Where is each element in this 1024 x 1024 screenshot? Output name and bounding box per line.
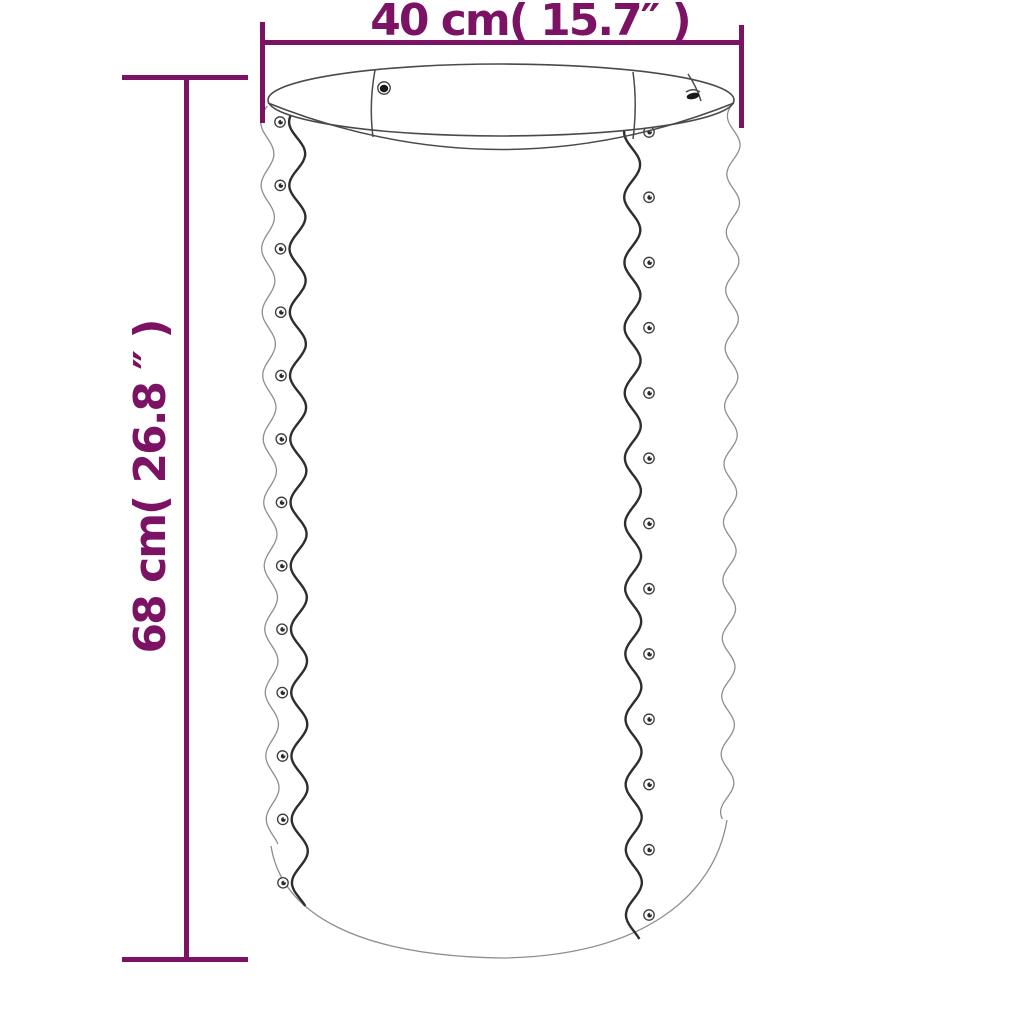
rivet-icon [644, 910, 654, 920]
product-dimension-diagram: 40 cm( 15.7″ ) 68 cm( 26.8 ″ ) [0, 0, 1024, 1024]
rivet-icon [644, 453, 654, 463]
rivet-icon [644, 714, 654, 724]
rivet-icon [277, 624, 287, 634]
rivet-icon [277, 687, 287, 697]
rivet-icon [644, 649, 654, 659]
height-dimension-cap-bottom [122, 957, 248, 962]
rivet-icon [275, 244, 285, 254]
width-dimension-tick-right [739, 25, 744, 128]
rivet-icon [644, 845, 654, 855]
rivet-icon [275, 117, 285, 127]
width-dimension-tick-left [260, 22, 265, 123]
rivet-icon [644, 192, 654, 202]
screw-icon [378, 82, 390, 94]
width-dimension-label: 40 cm( 15.7″ ) [330, 0, 730, 44]
planter-rim [268, 64, 734, 150]
height-dimension-label: 68 cm( 26.8 ″ ) [126, 237, 174, 737]
rivet-icon [644, 257, 654, 267]
planter-body [261, 102, 740, 958]
rivet-icon [276, 307, 286, 317]
rivet-icon [277, 561, 287, 571]
rivet-icon [276, 434, 286, 444]
rivet-icon [278, 814, 288, 824]
rivet-icon [276, 370, 286, 380]
rivet-icon [644, 323, 654, 333]
rivet-icon [644, 518, 654, 528]
height-dimension-cap-top [122, 75, 248, 80]
rivet-icon [278, 878, 288, 888]
rivet-icon [276, 497, 286, 507]
rivet-icon [277, 751, 287, 761]
rivet-icon [644, 584, 654, 594]
rivet-icon [644, 388, 654, 398]
rivet-icon [644, 779, 654, 789]
height-dimension-line [184, 77, 189, 962]
rivet-icon [275, 180, 285, 190]
